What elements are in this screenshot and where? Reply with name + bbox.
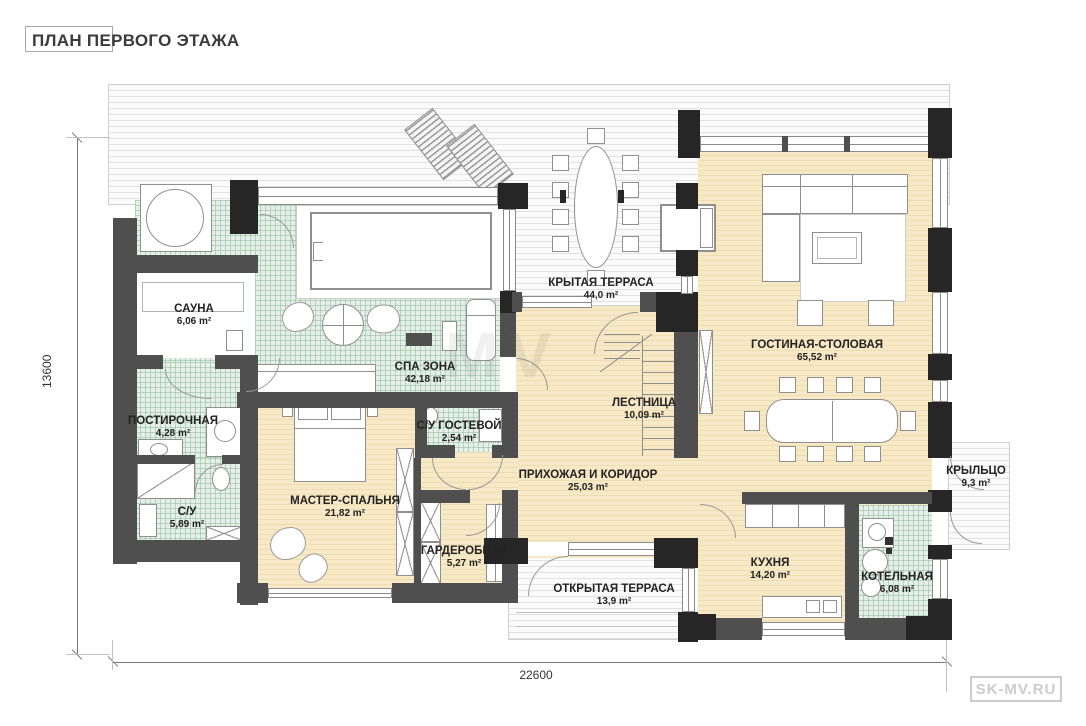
spa-mat bbox=[406, 333, 432, 346]
dining-chair bbox=[864, 446, 881, 462]
terrace-post bbox=[560, 190, 566, 203]
wall-pier bbox=[230, 180, 258, 234]
wall-pier bbox=[928, 354, 952, 380]
wall-pier bbox=[656, 292, 698, 332]
wall-pier bbox=[676, 183, 698, 209]
dining-chair bbox=[779, 377, 796, 393]
center-watermark: MV bbox=[445, 318, 561, 392]
terrace-chair bbox=[622, 155, 639, 171]
kitchen-sink bbox=[823, 600, 837, 613]
wall-pier bbox=[676, 250, 698, 276]
sofa-cushion-line bbox=[852, 175, 853, 213]
sauna-stove bbox=[226, 330, 243, 351]
wall bbox=[137, 455, 195, 464]
terrace-post bbox=[618, 190, 624, 203]
room-label-wardrobe: ГАРДЕРОБНАЯ5,27 m² bbox=[421, 544, 508, 571]
window bbox=[762, 622, 845, 636]
page-title: ПЛАН ПЕРВОГО ЭТАЖА bbox=[32, 31, 239, 51]
terrace-chair bbox=[552, 155, 569, 171]
wall bbox=[415, 445, 455, 458]
wall-pier bbox=[928, 402, 952, 458]
room-label-sauna: САУНА6,06 m² bbox=[174, 302, 214, 329]
terrace-chair bbox=[552, 236, 569, 252]
terrace-chair bbox=[552, 209, 569, 225]
boiler-door-opening bbox=[932, 512, 948, 545]
terrace-chair bbox=[622, 182, 639, 198]
window bbox=[932, 380, 948, 402]
room-label-guest-wc: С/У ГОСТЕВОЙ2,54 m² bbox=[416, 419, 501, 446]
room-label-covered-terrace: КРЫТАЯ ТЕРРАСА44,0 m² bbox=[548, 276, 653, 303]
pool-ladder bbox=[313, 242, 323, 243]
site-watermark: SK-MV.RU bbox=[970, 676, 1062, 702]
wall-pier bbox=[678, 110, 700, 158]
kitchen-counter bbox=[745, 504, 845, 528]
kitchen-sink bbox=[806, 600, 820, 613]
extension-line bbox=[112, 640, 113, 670]
hot-tub-basin bbox=[146, 189, 204, 247]
sofa-chaise bbox=[762, 214, 800, 282]
pouf bbox=[868, 300, 894, 326]
pillow bbox=[331, 407, 361, 420]
counter-division bbox=[798, 505, 799, 527]
bathroom-cabinet bbox=[206, 526, 242, 541]
dining-chair bbox=[779, 446, 796, 462]
window bbox=[503, 209, 516, 291]
wall bbox=[130, 255, 258, 273]
tv-console bbox=[700, 208, 713, 248]
room-label-kitchen: КУХНЯ14,20 m² bbox=[750, 556, 790, 583]
sofa bbox=[762, 174, 908, 214]
dining-chair bbox=[864, 377, 881, 393]
sofa-cushion-line bbox=[763, 186, 907, 187]
dimension-line-bottom bbox=[113, 662, 947, 663]
boiler-equipment bbox=[885, 537, 893, 545]
window bbox=[932, 292, 948, 354]
terrace-dining-table bbox=[574, 146, 618, 268]
wall bbox=[414, 490, 470, 503]
terrace-chair bbox=[622, 236, 639, 252]
dining-chair bbox=[900, 411, 916, 431]
wall bbox=[237, 392, 518, 408]
room-label-open-terrace: ОТКРЫТАЯ ТЕРРАСА13,9 m² bbox=[553, 582, 674, 609]
pillow bbox=[298, 407, 328, 420]
wall-pier bbox=[928, 108, 952, 158]
extension-line bbox=[66, 654, 110, 655]
wall bbox=[392, 583, 414, 603]
room-label-laundry: ПОСТИРОЧНАЯ4,28 m² bbox=[128, 414, 218, 441]
coffee-table-top bbox=[817, 237, 857, 259]
dining-chair bbox=[836, 377, 853, 393]
boiler-unit-drum bbox=[868, 523, 886, 541]
wardrobe-cabinet bbox=[396, 512, 414, 576]
wall bbox=[845, 504, 859, 618]
terrace-step-line bbox=[516, 626, 686, 627]
dining-chair bbox=[807, 377, 824, 393]
spa-table-cross bbox=[323, 325, 363, 326]
wall-pier bbox=[906, 616, 932, 640]
dimension-label-bottom: 22600 bbox=[506, 668, 566, 682]
terrace-step-line bbox=[516, 612, 686, 613]
wall-pier bbox=[498, 183, 528, 209]
floor-plan-canvas: ПЛАН ПЕРВОГО ЭТАЖА MV bbox=[0, 0, 1086, 726]
extension-line bbox=[66, 137, 110, 138]
room-label-boiler: КОТЕЛЬНАЯ6,08 m² bbox=[861, 570, 933, 597]
window bbox=[682, 568, 695, 612]
pool bbox=[310, 212, 492, 290]
pool-ladder bbox=[313, 260, 323, 261]
window bbox=[258, 187, 498, 205]
wall bbox=[222, 455, 242, 464]
room-label-master-bedroom: МАСТЕР-СПАЛЬНЯ21,82 m² bbox=[290, 494, 400, 521]
wall bbox=[413, 583, 513, 603]
wall-pier bbox=[928, 228, 952, 292]
counter-division bbox=[772, 505, 773, 527]
room-label-porch: КРЫЛЬЦО9,3 m² bbox=[946, 464, 1006, 491]
wall bbox=[512, 292, 522, 312]
door-opening bbox=[528, 542, 568, 556]
wall bbox=[742, 492, 932, 504]
wardrobe-cabinet bbox=[420, 500, 441, 542]
sofa-cushion-line bbox=[800, 175, 801, 213]
boiler-equipment bbox=[886, 548, 892, 554]
terrace-chair bbox=[587, 128, 605, 144]
wall bbox=[674, 332, 698, 458]
room-label-spa: СПА ЗОНА42,18 m² bbox=[395, 360, 456, 387]
wall bbox=[113, 540, 243, 562]
wall-pier bbox=[678, 612, 698, 642]
dining-table-seam bbox=[832, 401, 833, 441]
closet bbox=[699, 330, 713, 414]
window bbox=[932, 158, 948, 228]
window bbox=[681, 276, 693, 294]
shower bbox=[137, 461, 195, 499]
pool-ladder bbox=[313, 242, 314, 261]
room-label-bathroom: С/У5,89 m² bbox=[170, 505, 204, 532]
wall-pier bbox=[654, 538, 698, 568]
extension-line bbox=[946, 640, 947, 692]
window-mullion bbox=[844, 136, 850, 152]
room-label-hallway: ПРИХОЖАЯ И КОРИДОР25,03 m² bbox=[519, 468, 658, 495]
dining-chair bbox=[744, 411, 760, 431]
room-label-stairs: ЛЕСТНИЦА10,09 m² bbox=[612, 396, 676, 423]
dining-chair bbox=[836, 446, 853, 462]
dining-chair bbox=[807, 446, 824, 462]
dimension-line-left bbox=[77, 138, 78, 655]
wall bbox=[137, 355, 163, 369]
massage-table-line bbox=[467, 315, 495, 316]
bed-blanket-line bbox=[295, 428, 365, 429]
wall-pier bbox=[928, 545, 952, 559]
window bbox=[700, 136, 930, 152]
window bbox=[932, 559, 948, 599]
wall bbox=[237, 583, 268, 603]
pouf bbox=[797, 300, 823, 326]
terrace-chair bbox=[622, 209, 639, 225]
window bbox=[268, 588, 392, 598]
room-label-living-dining: ГОСТИНАЯ-СТОЛОВАЯ65,52 m² bbox=[751, 338, 883, 365]
counter-division bbox=[824, 505, 825, 527]
window-mullion bbox=[782, 136, 788, 152]
bathroom-basin bbox=[139, 504, 157, 537]
dimension-label-left: 13600 bbox=[40, 355, 54, 388]
